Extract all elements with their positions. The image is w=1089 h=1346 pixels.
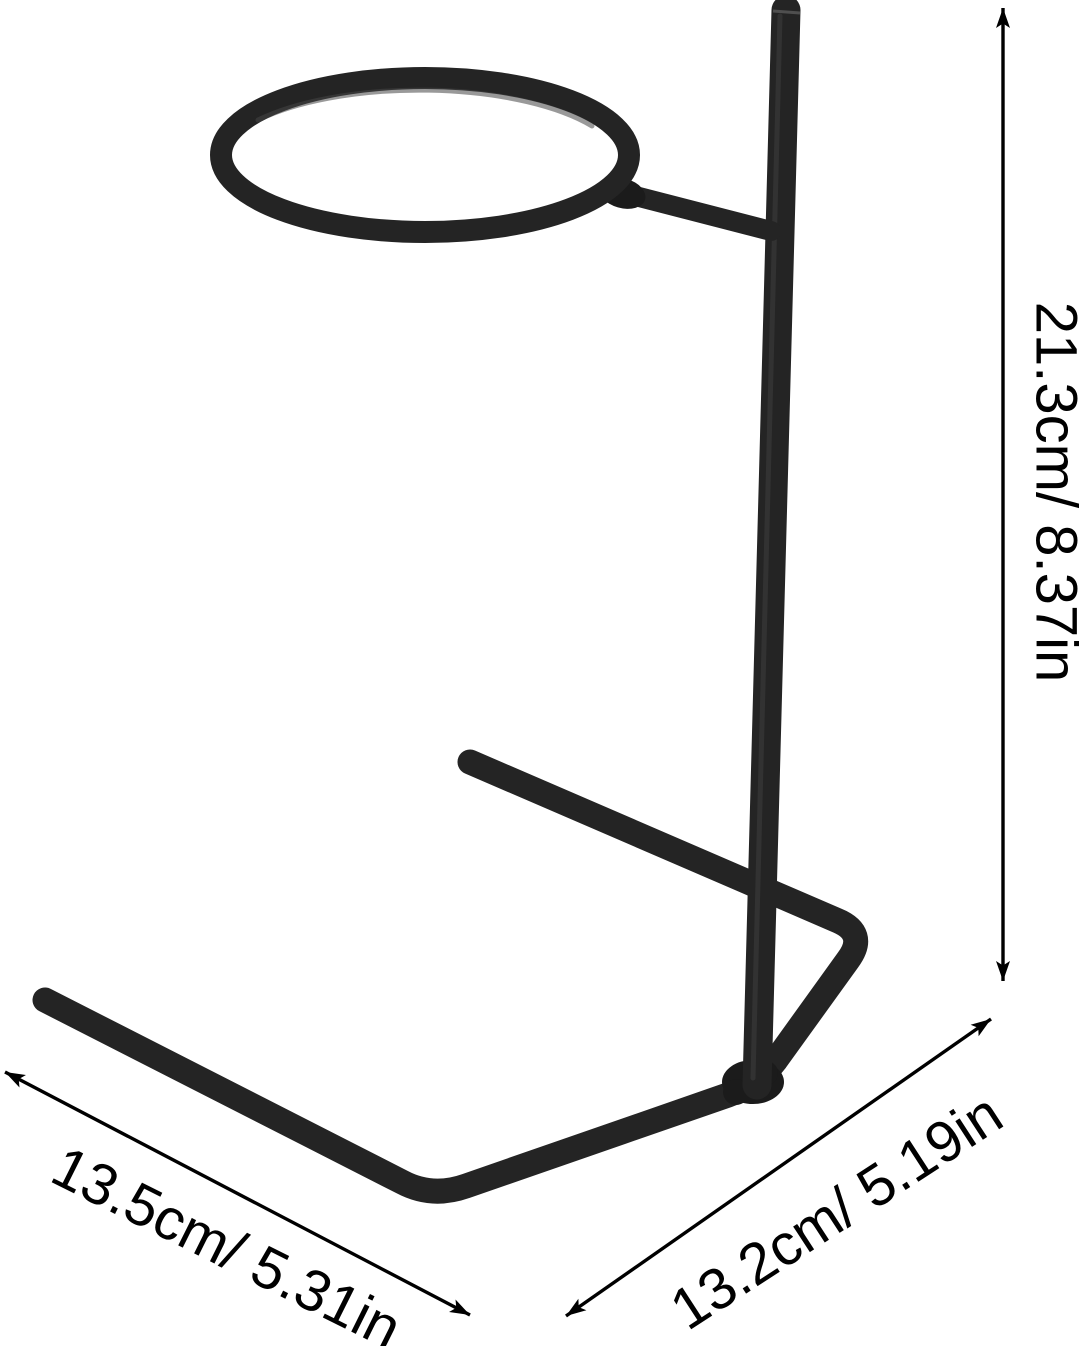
base-frame [45, 762, 856, 1191]
dimension-diagram-canvas: 21.3cm/ 8.37in 13.5cm/ 5.31in 13.2cm/ 5.… [0, 0, 1089, 1346]
support-pole [757, 10, 786, 1085]
pole-top-cut-edge [773, 11, 800, 13]
product-dimension-image: 21.3cm/ 8.37in 13.5cm/ 5.31in 13.2cm/ 5.… [0, 0, 1089, 1346]
holder-ring [221, 78, 629, 232]
height-dimension-label: 21.3cm/ 8.37in [1024, 302, 1089, 682]
ring-stand [45, 10, 856, 1191]
